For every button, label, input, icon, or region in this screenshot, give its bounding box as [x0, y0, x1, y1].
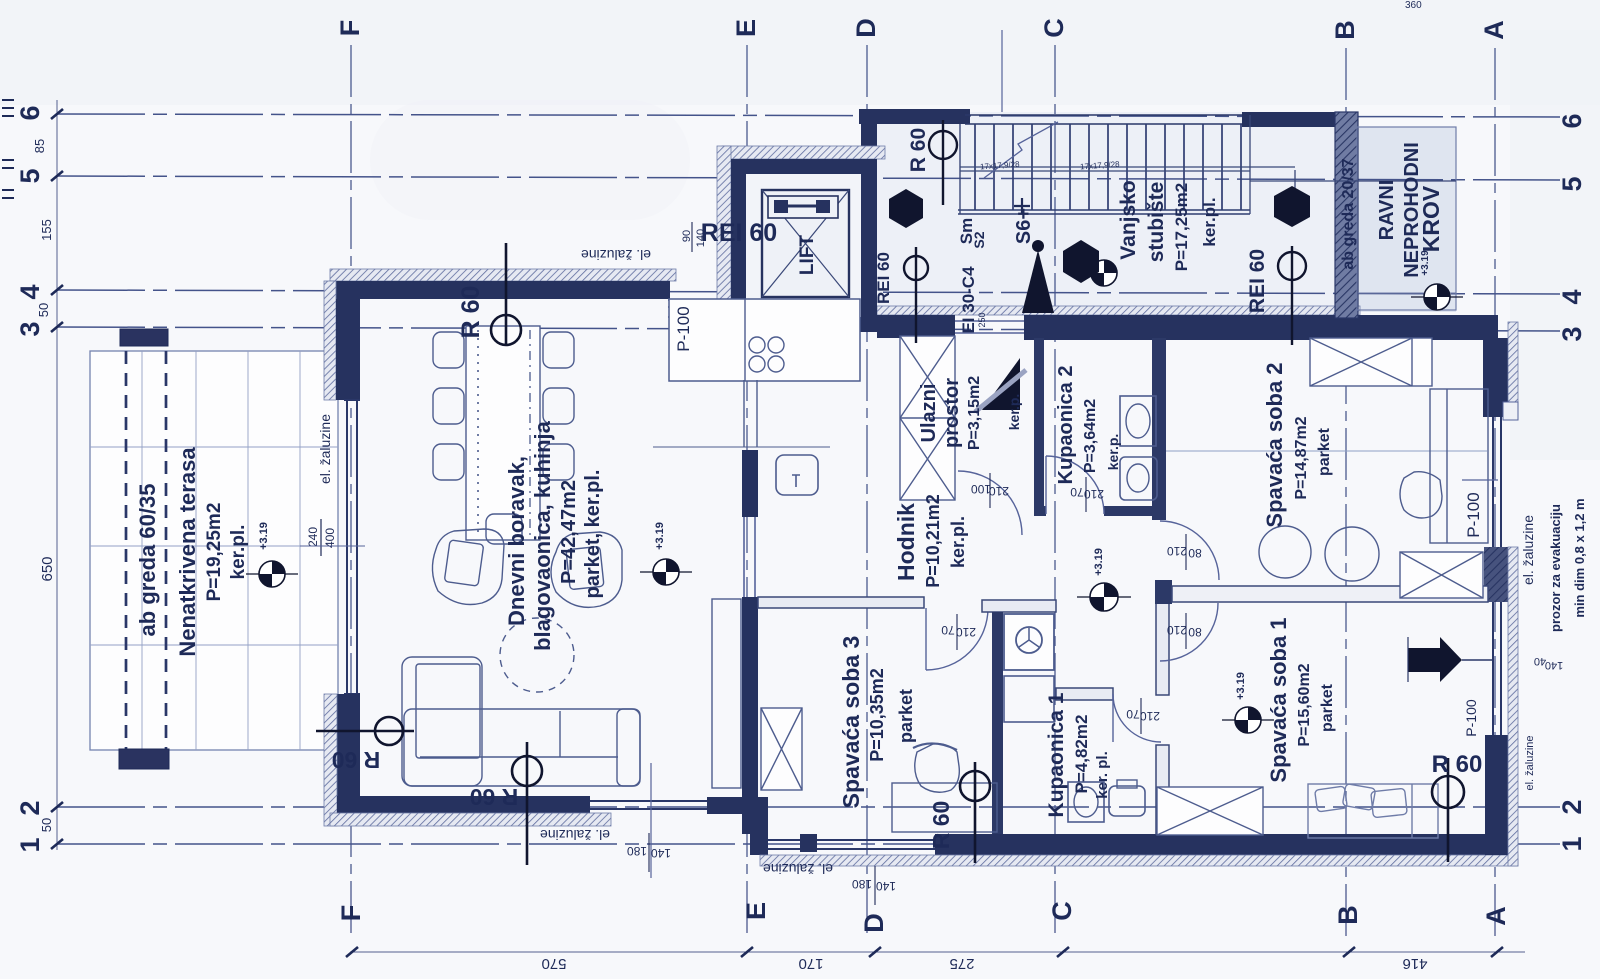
- svg-text:parket: parket: [1316, 427, 1333, 476]
- svg-text:R 60: R 60: [907, 128, 930, 172]
- svg-text:REI 60: REI 60: [874, 252, 893, 304]
- svg-text:650: 650: [39, 556, 56, 581]
- svg-text:70: 70: [941, 623, 955, 637]
- svg-text:1: 1: [15, 837, 45, 852]
- svg-text:prozor za evakuaciju: prozor za evakuaciju: [1548, 504, 1563, 632]
- svg-text:R 60: R 60: [470, 784, 519, 810]
- svg-text:EI 30-C4: EI 30-C4: [959, 266, 978, 334]
- svg-text:5: 5: [15, 168, 45, 183]
- svg-text:parket: parket: [1319, 683, 1336, 732]
- svg-text:+3.19: +3.19: [1420, 250, 1431, 276]
- svg-text:E: E: [731, 19, 761, 37]
- svg-text:el. žaluzine: el. žaluzine: [540, 827, 610, 843]
- svg-text:5: 5: [1557, 176, 1587, 191]
- svg-text:+3.19: +3.19: [1093, 548, 1105, 576]
- svg-text:Spavaća soba 3: Spavaća soba 3: [838, 636, 864, 809]
- svg-text:2: 2: [1557, 799, 1587, 814]
- svg-text:140: 140: [651, 846, 671, 860]
- svg-text:S6+: S6+: [1013, 208, 1035, 244]
- svg-text:360: 360: [1405, 0, 1422, 11]
- svg-text:570: 570: [541, 955, 566, 972]
- svg-text:Dnevni boravak,: Dnevni boravak,: [504, 456, 529, 626]
- svg-text:P=4,82m2: P=4,82m2: [1072, 715, 1091, 794]
- svg-text:P-100: P-100: [1464, 492, 1483, 537]
- svg-text:210: 210: [1084, 487, 1104, 501]
- svg-text:ker.pl.: ker.pl.: [228, 525, 249, 580]
- svg-text:P-100: P-100: [1463, 699, 1479, 737]
- svg-text:6: 6: [15, 105, 45, 120]
- svg-text:ker. pl.: ker. pl.: [1094, 751, 1111, 799]
- svg-text:prostor: prostor: [941, 378, 963, 448]
- svg-text:REI 60: REI 60: [701, 219, 777, 247]
- svg-text:REI 60: REI 60: [1246, 249, 1269, 313]
- svg-text:+3.19: +3.19: [258, 522, 270, 550]
- svg-text:el. žaluzine: el. žaluzine: [1520, 515, 1536, 585]
- svg-text:stubište: stubište: [1145, 182, 1168, 263]
- svg-text:P=15,60m2: P=15,60m2: [1296, 663, 1313, 746]
- svg-text:170: 170: [798, 955, 823, 972]
- svg-text:Ulazni: Ulazni: [918, 384, 940, 443]
- svg-text:4: 4: [1557, 289, 1587, 304]
- svg-text:210: 210: [1167, 544, 1187, 558]
- svg-text:Kupaonica 1: Kupaonica 1: [1045, 692, 1068, 817]
- svg-text:A: A: [1479, 20, 1509, 40]
- svg-text:40: 40: [1534, 655, 1546, 667]
- svg-text:P=19,25m2: P=19,25m2: [204, 503, 225, 602]
- svg-text:416: 416: [1402, 955, 1427, 972]
- svg-text:S2: S2: [971, 231, 987, 248]
- svg-text:KROV: KROV: [1418, 185, 1444, 252]
- svg-text:P=17,25m2: P=17,25m2: [1172, 183, 1191, 271]
- svg-text:Vanjsko: Vanjsko: [1117, 180, 1140, 259]
- svg-text:50: 50: [36, 303, 51, 317]
- svg-text:400: 400: [323, 528, 337, 548]
- svg-text:Nenatkrivena terasa: Nenatkrivena terasa: [175, 447, 200, 657]
- svg-text:210: 210: [956, 625, 976, 639]
- svg-text:Spavaća soba 2: Spavaća soba 2: [1262, 362, 1287, 527]
- svg-text:B: B: [1333, 905, 1363, 925]
- svg-text:+3.19: +3.19: [1235, 672, 1247, 700]
- svg-text:4: 4: [15, 284, 45, 299]
- svg-text:blagovaonica, kuhinja: blagovaonica, kuhinja: [530, 420, 555, 651]
- svg-text:P=10,21m2: P=10,21m2: [923, 494, 943, 588]
- svg-text:6: 6: [1557, 113, 1587, 128]
- svg-text:A: A: [1481, 906, 1511, 926]
- svg-text:D: D: [851, 18, 881, 38]
- svg-text:210: 210: [1140, 709, 1160, 723]
- svg-text:140: 140: [876, 879, 896, 893]
- svg-text:parket: parket: [896, 689, 916, 743]
- svg-text:70: 70: [1070, 485, 1084, 499]
- svg-text:80: 80: [1188, 546, 1202, 560]
- svg-text:E: E: [741, 902, 771, 920]
- svg-text:P=14,87m2: P=14,87m2: [1293, 416, 1310, 499]
- svg-text:RAVNI: RAVNI: [1376, 180, 1398, 241]
- svg-text:parket, ker.pl.: parket, ker.pl.: [582, 470, 604, 599]
- svg-text:80: 80: [1188, 625, 1202, 639]
- svg-text:3: 3: [15, 321, 45, 336]
- svg-text:275: 275: [949, 955, 974, 972]
- svg-text:F: F: [336, 905, 366, 922]
- svg-text:Kupaonica 2: Kupaonica 2: [1055, 366, 1077, 485]
- svg-text:70: 70: [1126, 707, 1140, 721]
- svg-text:ab greda 20/37: ab greda 20/37: [1340, 158, 1357, 269]
- svg-text:180: 180: [627, 844, 647, 858]
- svg-text:3: 3: [1557, 326, 1587, 341]
- svg-text:el. žaluzine: el. žaluzine: [1524, 735, 1536, 790]
- svg-text:+3.19: +3.19: [654, 522, 666, 550]
- svg-text:140: 140: [1545, 659, 1563, 671]
- svg-text:P=10,35m2: P=10,35m2: [867, 668, 887, 762]
- svg-text:210: 210: [1167, 623, 1187, 637]
- svg-text:P-100: P-100: [674, 306, 693, 351]
- svg-text:el. žaluzine: el. žaluzine: [581, 247, 651, 263]
- svg-text:2: 2: [15, 800, 45, 815]
- svg-text:50: 50: [39, 818, 54, 832]
- svg-text:D: D: [859, 913, 889, 933]
- svg-text:ker.p.: ker.p.: [1006, 394, 1022, 431]
- svg-text:1: 1: [1557, 836, 1587, 851]
- svg-text:100: 100: [971, 482, 991, 496]
- svg-text:P=3,15m2: P=3,15m2: [966, 376, 983, 450]
- svg-text:250: 250: [977, 312, 987, 327]
- svg-text:R 60: R 60: [928, 801, 954, 850]
- svg-text:210: 210: [989, 484, 1009, 498]
- svg-text:ab greda 60/35: ab greda 60/35: [135, 484, 160, 637]
- svg-text:155: 155: [39, 219, 54, 241]
- svg-text:ker.p.: ker.p.: [1105, 434, 1121, 471]
- svg-text:LIFT: LIFT: [797, 235, 818, 275]
- svg-text:C: C: [1039, 18, 1069, 38]
- svg-text:R 60: R 60: [332, 747, 381, 773]
- svg-text:ker.pl.: ker.pl.: [1200, 197, 1219, 246]
- svg-text:F: F: [335, 20, 365, 37]
- svg-text:B: B: [1330, 20, 1360, 40]
- svg-text:P=3,64m2: P=3,64m2: [1082, 399, 1099, 473]
- svg-text:Hodnik: Hodnik: [893, 503, 919, 581]
- svg-text:P=42,47m2: P=42,47m2: [558, 480, 580, 584]
- svg-text:min dim 0,8 x 1,2 m: min dim 0,8 x 1,2 m: [1572, 498, 1587, 617]
- svg-text:R 60: R 60: [1432, 751, 1483, 778]
- svg-text:el. žaluzine: el. žaluzine: [317, 414, 333, 484]
- svg-text:240: 240: [306, 527, 320, 547]
- svg-text:90: 90: [681, 230, 693, 242]
- svg-text:C: C: [1047, 901, 1077, 921]
- svg-text:85: 85: [32, 139, 47, 153]
- svg-text:ker.pl.: ker.pl.: [948, 516, 968, 568]
- svg-text:R 60: R 60: [457, 286, 485, 339]
- svg-text:180: 180: [852, 877, 872, 891]
- svg-text:el. žaluzine: el. žaluzine: [763, 861, 833, 877]
- svg-text:Spavaća soba 1: Spavaća soba 1: [1266, 617, 1291, 782]
